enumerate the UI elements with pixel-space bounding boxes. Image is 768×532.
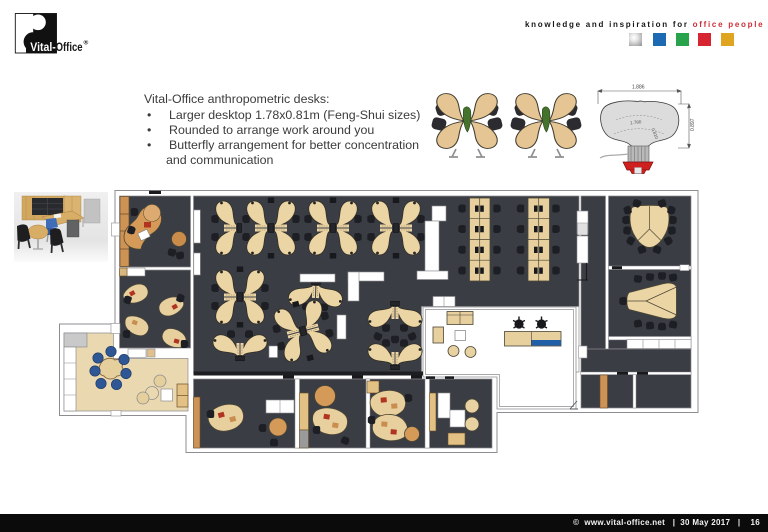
svg-text:0.897: 0.897 bbox=[690, 118, 696, 131]
svg-text:1.886: 1.886 bbox=[632, 85, 645, 91]
